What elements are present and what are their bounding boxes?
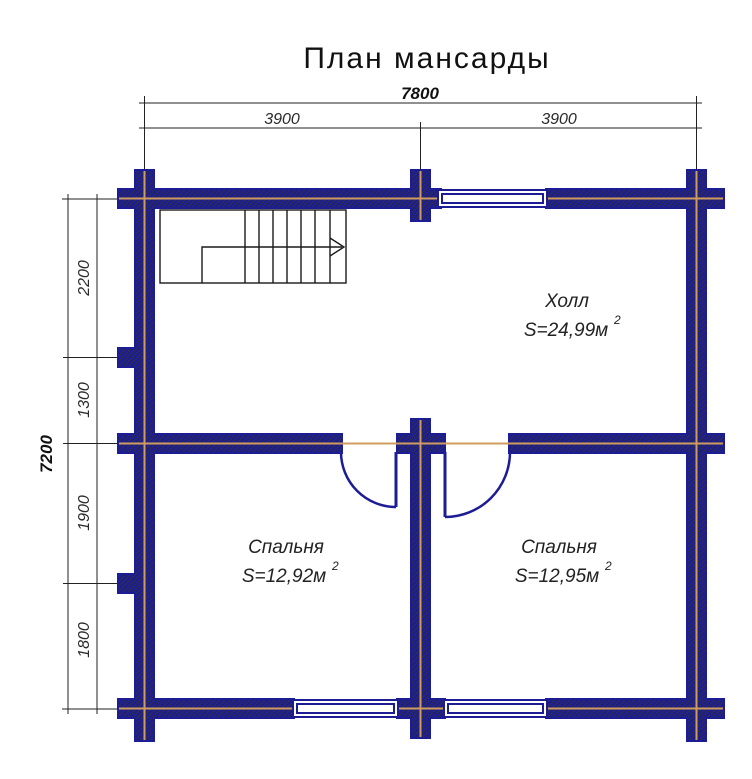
window-bottom-right: [444, 700, 547, 717]
room-area-bedroom-right-sup: 2: [604, 559, 612, 573]
room-area-bedroom-right: S=12,95м: [515, 566, 599, 587]
room-area-bedroom-left-sup: 2: [331, 559, 339, 573]
floor-plan-page: План мансарды 7800 3900 3900 7200 2200 1…: [0, 0, 752, 779]
dim-left-total: 7200: [37, 435, 56, 473]
dim-left-segment-2: 1300: [76, 382, 93, 418]
dim-left-segment-1: 2200: [76, 260, 93, 297]
dim-left-segment-4: 1800: [76, 622, 93, 658]
room-name-hall: Холл: [544, 291, 589, 312]
wall-axis-lines: [119, 171, 723, 740]
room-area-hall: S=24,99м: [524, 320, 608, 341]
room-name-bedroom-right: Спальня: [521, 537, 597, 558]
page-title: План мансарды: [303, 42, 550, 75]
staircase: [160, 210, 346, 283]
window-top: [438, 190, 547, 207]
stairs-walk-line: [202, 247, 342, 283]
room-area-hall-sup: 2: [613, 313, 621, 327]
floor-plan-drawing: План мансарды 7800 3900 3900 7200 2200 1…: [0, 0, 752, 779]
room-area-bedroom-left: S=12,92м: [242, 566, 326, 587]
dim-top-segment-1: 3900: [264, 111, 300, 128]
room-name-bedroom-left: Спальня: [248, 537, 324, 558]
dim-line-left-total: [62, 194, 74, 714]
dim-left-segment-3: 1900: [76, 495, 93, 531]
door-right-bedroom: [445, 452, 510, 517]
door-left-bedroom: [341, 452, 396, 507]
window-bottom-left: [293, 700, 398, 717]
dim-top-segment-2: 3900: [541, 111, 577, 128]
dim-top-total: 7800: [401, 84, 439, 103]
dim-line-top-segments: [139, 122, 702, 134]
